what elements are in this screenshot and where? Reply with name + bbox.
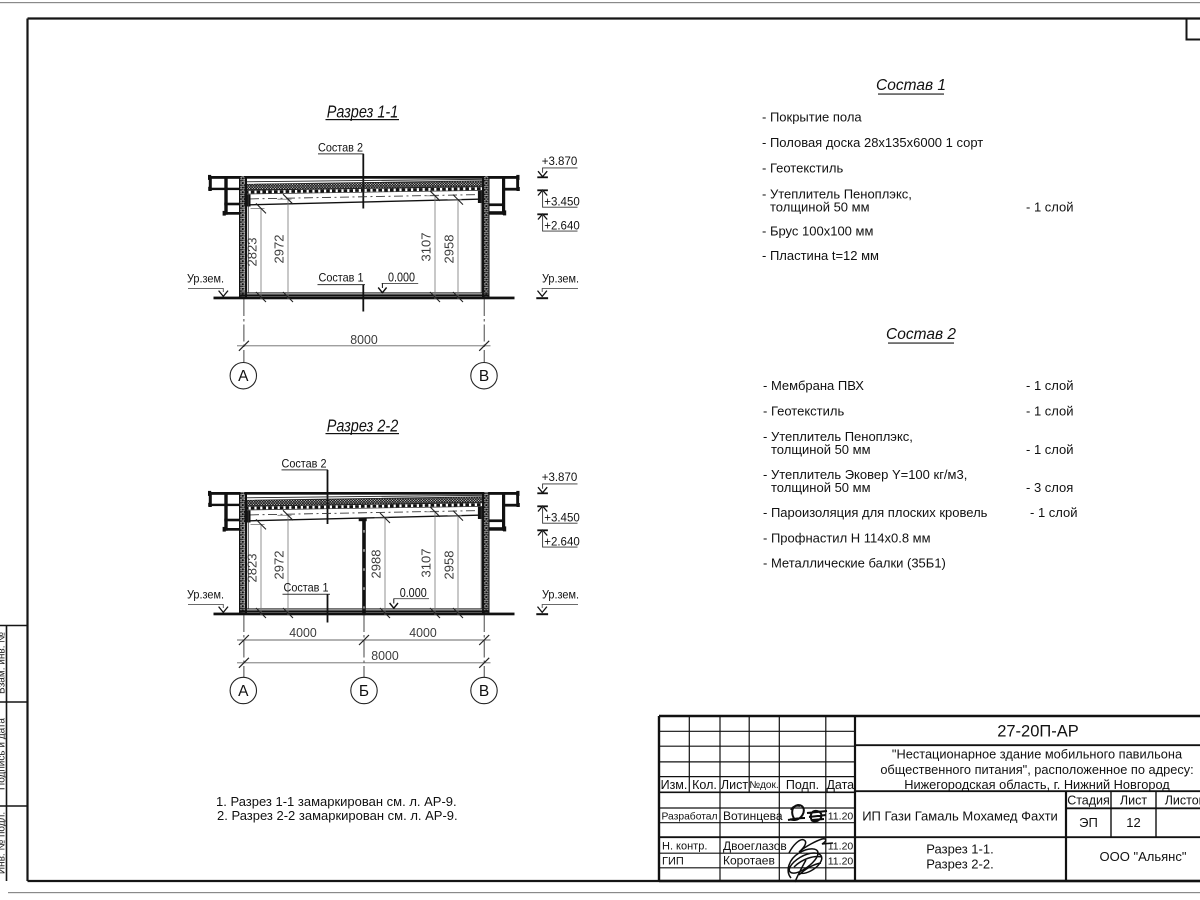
svg-text:1. Разрез 1-1 замаркирован см.: 1. Разрез 1-1 замаркирован см. л. АР-9. xyxy=(216,794,457,809)
svg-text:Лист: Лист xyxy=(1120,793,1147,807)
svg-text:- 1 слой: - 1 слой xyxy=(1026,404,1074,419)
svg-text:+3.450: +3.450 xyxy=(544,513,580,525)
svg-text:Ур.зем.: Ур.зем. xyxy=(187,587,224,601)
svg-text:Состав 2: Состав 2 xyxy=(886,326,956,343)
svg-text:Взам. инв. №: Взам. инв. № xyxy=(0,632,8,694)
svg-text:ЭП: ЭП xyxy=(1079,815,1098,830)
svg-text:- 1 слой: - 1 слой xyxy=(1026,199,1074,214)
svg-text:Разрез 2-2.: Разрез 2-2. xyxy=(926,857,993,872)
svg-text:Коротаев: Коротаев xyxy=(723,854,775,868)
svg-text:+2.640: +2.640 xyxy=(544,536,580,548)
svg-text:Подпись и дата: Подпись и дата xyxy=(0,718,8,790)
svg-text:Дата: Дата xyxy=(826,778,854,792)
svg-text:+3.870: +3.870 xyxy=(542,472,578,484)
svg-text:- Геотекстиль: - Геотекстиль xyxy=(762,161,843,176)
svg-text:- 3 слоя: - 3 слоя xyxy=(1026,480,1073,495)
svg-text:- 1 слой: - 1 слой xyxy=(1026,442,1074,457)
svg-text:- Пароизоляция для плоских кро: - Пароизоляция для плоских кровель xyxy=(763,505,988,520)
svg-text:толщиной 50 мм: толщиной 50 мм xyxy=(771,442,871,457)
svg-text:Состав 2: Состав 2 xyxy=(318,141,363,155)
svg-text:Состав 1: Состав 1 xyxy=(284,581,329,595)
svg-text:2. Разрез 2-2 замаркирован см.: 2. Разрез 2-2 замаркирован см. л. АР-9. xyxy=(217,808,458,823)
svg-text:ООО "Альянс": ООО "Альянс" xyxy=(1100,849,1187,864)
svg-text:2958: 2958 xyxy=(442,551,457,580)
svg-text:В: В xyxy=(479,683,489,700)
svg-text:- Половая доска 28х135х6000 1: - Половая доска 28х135х6000 1 сорт xyxy=(762,135,983,150)
svg-text:8000: 8000 xyxy=(371,648,399,663)
svg-text:+2.640: +2.640 xyxy=(544,220,580,232)
svg-text:+3.870: +3.870 xyxy=(542,156,578,168)
svg-text:Н. контр.: Н. контр. xyxy=(662,841,707,853)
svg-text:- 1 слой: - 1 слой xyxy=(1030,505,1078,520)
svg-text:Состав 1: Состав 1 xyxy=(876,77,946,94)
svg-text:Изм.: Изм. xyxy=(661,778,688,792)
svg-text:В: В xyxy=(479,368,489,385)
svg-text:Ур.зем.: Ур.зем. xyxy=(542,587,579,601)
svg-text:0.000: 0.000 xyxy=(388,270,415,284)
svg-text:Разработал: Разработал xyxy=(662,810,718,822)
svg-text:2823: 2823 xyxy=(245,554,260,583)
svg-text:27-20П-АР: 27-20П-АР xyxy=(997,723,1079,741)
svg-text:0.000: 0.000 xyxy=(400,586,427,600)
svg-text:Двоеглазов: Двоеглазов xyxy=(723,839,787,853)
svg-text:Состав 1: Состав 1 xyxy=(319,271,364,285)
svg-text:8000: 8000 xyxy=(350,332,378,347)
svg-text:11.20: 11.20 xyxy=(828,840,854,852)
svg-text:4000: 4000 xyxy=(289,625,317,640)
svg-text:2988: 2988 xyxy=(369,550,384,579)
svg-text:+3.450: +3.450 xyxy=(544,197,580,209)
svg-text:11.20: 11.20 xyxy=(828,855,854,867)
svg-text:11.20: 11.20 xyxy=(828,810,854,822)
svg-text:Б: Б xyxy=(359,683,369,700)
svg-text:Инв. № подл.: Инв. № подл. xyxy=(0,812,8,874)
svg-text:3107: 3107 xyxy=(419,549,434,578)
svg-text:толщиной 50 мм: толщиной 50 мм xyxy=(771,480,871,495)
svg-text:- Пластина t=12 мм: - Пластина t=12 мм xyxy=(762,248,879,263)
svg-text:- Профнастил Н 114х0.8 мм: - Профнастил Н 114х0.8 мм xyxy=(763,530,931,545)
svg-text:- Брус 100х100 мм: - Брус 100х100 мм xyxy=(762,223,873,238)
svg-text:Лист: Лист xyxy=(721,778,748,792)
svg-text:Состав 2: Состав 2 xyxy=(282,457,327,471)
svg-text:А: А xyxy=(238,683,249,700)
svg-text:2958: 2958 xyxy=(442,235,457,264)
svg-text:общественного питания", распол: общественного питания", расположенное по… xyxy=(880,762,1193,777)
svg-text:Разрез 2-2: Разрез 2-2 xyxy=(327,416,399,436)
svg-text:2972: 2972 xyxy=(272,235,287,264)
svg-text:- Мембрана ПВХ: - Мембрана ПВХ xyxy=(763,378,864,393)
svg-text:Стадия: Стадия xyxy=(1067,793,1110,807)
svg-text:Ур.зем.: Ур.зем. xyxy=(542,271,579,285)
svg-text:Подп.: Подп. xyxy=(786,778,819,792)
svg-text:ГИП: ГИП xyxy=(662,856,684,868)
svg-text:- 1 слой: - 1 слой xyxy=(1026,378,1074,393)
svg-text:3107: 3107 xyxy=(419,233,434,262)
svg-text:- Геотекстиль: - Геотекстиль xyxy=(763,404,844,419)
svg-text:Вотинцева: Вотинцева xyxy=(723,809,783,823)
svg-text:"Нестационарное здание мобильн: "Нестационарное здание мобильного павиль… xyxy=(892,747,1183,762)
svg-text:А: А xyxy=(238,368,249,385)
svg-text:- Металлические балки (35Б1): - Металлические балки (35Б1) xyxy=(763,556,946,571)
svg-text:Разрез 1-1: Разрез 1-1 xyxy=(327,102,399,122)
svg-text:Кол.: Кол. xyxy=(692,778,717,792)
svg-text:толщиной 50 мм: толщиной 50 мм xyxy=(770,199,870,214)
svg-text:Нижегородская область, г. Нижн: Нижегородская область, г. Нижний Новгоро… xyxy=(904,777,1170,792)
svg-text:ИП Гази Гамаль Мохамед Фахти: ИП Гази Гамаль Мохамед Фахти xyxy=(862,809,1058,824)
svg-text:Разрез 1-1.: Разрез 1-1. xyxy=(926,842,993,857)
svg-text:Ур.зем.: Ур.зем. xyxy=(187,271,224,285)
svg-text:- Покрытие пола: - Покрытие пола xyxy=(762,110,862,125)
svg-text:4000: 4000 xyxy=(409,625,437,640)
svg-text:2823: 2823 xyxy=(245,238,260,267)
svg-text:Листов: Листов xyxy=(1165,793,1200,807)
svg-text:12: 12 xyxy=(1126,815,1140,830)
svg-text:2972: 2972 xyxy=(272,551,287,580)
svg-text:№док.: №док. xyxy=(749,780,778,791)
